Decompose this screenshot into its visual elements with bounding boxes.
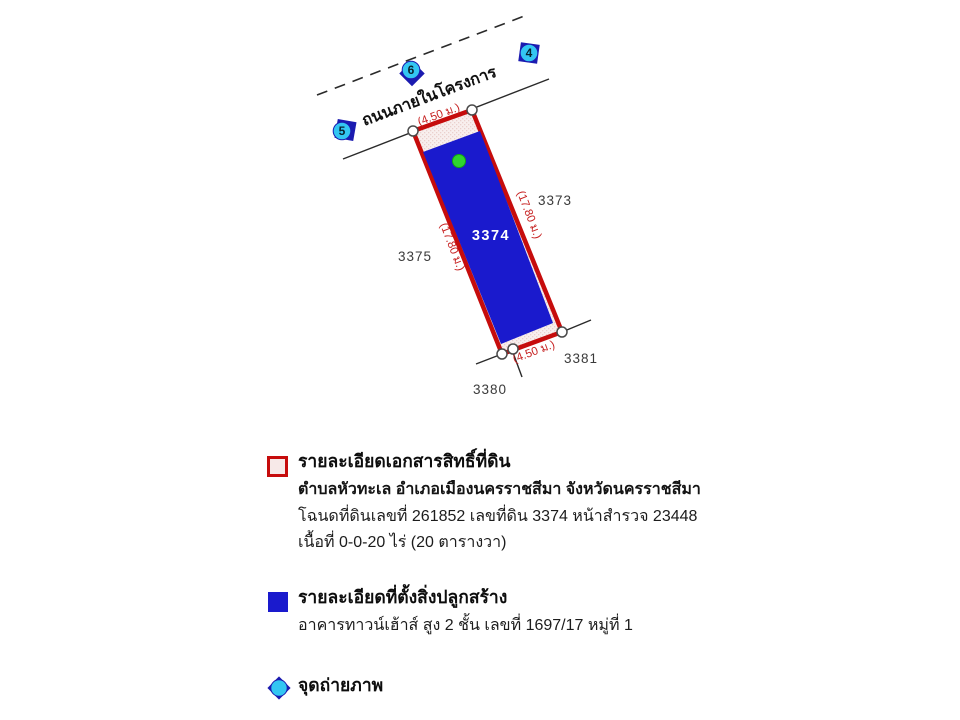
legend-deed-numbers: โฉนดที่ดินเลขที่ 261852 เลขที่ดิน 3374 ห… bbox=[298, 505, 697, 528]
legend-building-detail: อาคารทาวน์เฮ้าส์ สูง 2 ชั้น เลขที่ 1697/… bbox=[298, 614, 633, 637]
photo-point-number: 4 bbox=[526, 46, 533, 60]
survey-marker-bottom-divider bbox=[508, 344, 518, 354]
photo-point-marker-4: 4 bbox=[518, 42, 539, 63]
neighbor-parcel-bottom-right: 3381 bbox=[564, 351, 598, 366]
neighbor-parcel-right: 3373 bbox=[538, 193, 572, 208]
legend-swatch-land-parcel bbox=[267, 456, 288, 477]
legend-photo-point-label: จุดถ่ายภาพ bbox=[298, 673, 383, 698]
photo-point-marker-6: 6 bbox=[399, 61, 424, 86]
photo-marker-circle bbox=[271, 680, 287, 696]
legend-land-title-heading: รายละเอียดเอกสารสิทธิ์ที่ดิน bbox=[298, 449, 510, 474]
road-far-edge-dashed-line bbox=[317, 15, 527, 95]
green-location-dot bbox=[453, 155, 466, 168]
survey-marker-bottom-left bbox=[497, 349, 507, 359]
legend-land-location: ตำบลหัวทะเล อำเภอเมืองนครราชสีมา จังหวัด… bbox=[298, 478, 701, 501]
photo-point-marker-5: 5 bbox=[333, 119, 356, 141]
survey-marker-top-left bbox=[408, 126, 418, 136]
neighbor-parcel-bottom-left: 3380 bbox=[473, 382, 507, 397]
legend-land-area: เนื้อที่ 0-0-20 ไร่ (20 ตารางวา) bbox=[298, 531, 506, 554]
plot-map: ถนนภายในโครงการ 3374 (4.50 ม.) (4.50 ม.)… bbox=[0, 0, 960, 440]
neighbor-parcel-left: 3375 bbox=[398, 249, 432, 264]
survey-marker-top-right bbox=[467, 105, 477, 115]
photo-point-number: 5 bbox=[339, 124, 346, 138]
survey-marker-bottom-right bbox=[557, 327, 567, 337]
legend-building-heading: รายละเอียดที่ตั้งสิ่งปลูกสร้าง bbox=[298, 585, 507, 610]
photo-point-icon bbox=[262, 671, 296, 705]
photo-point-number: 6 bbox=[408, 63, 415, 77]
land-plot-diagram-page: ถนนภายในโครงการ 3374 (4.50 ม.) (4.50 ม.)… bbox=[0, 0, 960, 720]
legend-swatch-building bbox=[268, 592, 288, 612]
parcel-number-label: 3374 bbox=[472, 228, 510, 244]
